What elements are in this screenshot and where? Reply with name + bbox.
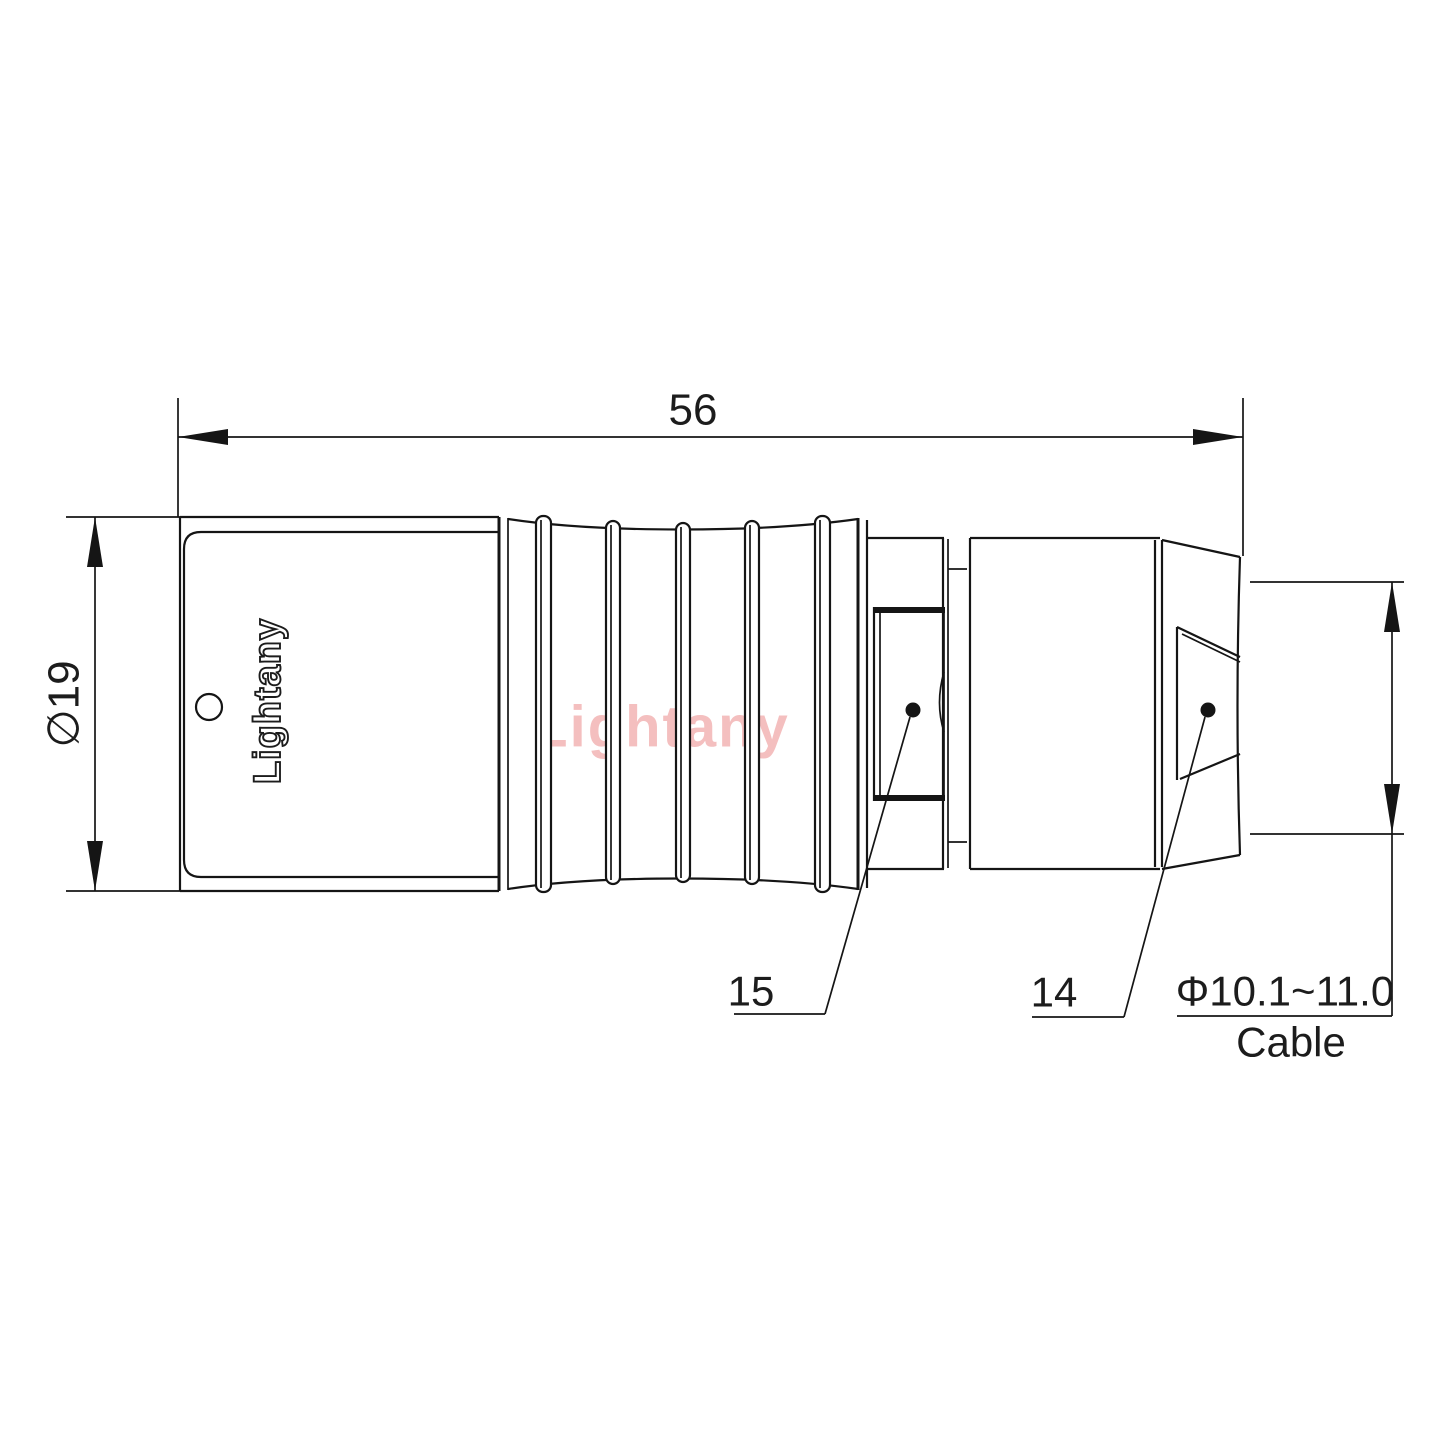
collet-section	[867, 538, 948, 869]
backnut	[970, 538, 1240, 869]
arrowhead-top	[87, 517, 103, 567]
dimension-body-diameter: ∅19	[40, 517, 181, 891]
part-label-14: 14	[1031, 969, 1078, 1016]
leader-dot-15	[906, 703, 921, 718]
arrowhead-bottom	[87, 841, 103, 891]
boot-rib-3	[676, 523, 690, 882]
overall-length-value: 56	[669, 386, 718, 435]
section-tie-lines	[948, 569, 967, 842]
part-label-15: 15	[728, 968, 775, 1015]
leader-dot-14	[1201, 703, 1216, 718]
dimension-cable-diameter: Φ10.1~11.0 Cable	[1176, 582, 1404, 1066]
front-release-sleeve: Lightany	[180, 517, 508, 891]
sleeve-inner-outline	[184, 532, 499, 877]
boot-rib-4	[745, 521, 759, 884]
dimension-overall-length: 56	[178, 386, 1243, 557]
arrowhead-right	[1193, 429, 1243, 445]
backnut-chamfer-bottom	[1162, 855, 1240, 869]
boot-rib-2	[606, 521, 620, 884]
cable-caption: Cable	[1236, 1019, 1346, 1066]
backnut-end-face	[1238, 557, 1241, 855]
cable-window-top-inner	[1182, 634, 1240, 662]
body-diameter-value: ∅19	[40, 660, 89, 747]
connector-drawing-svg: Lightany Lightany	[0, 0, 1440, 1440]
body-logo-text: Lightany	[247, 618, 289, 784]
cable-diameter-value: Φ10.1~11.0	[1176, 968, 1394, 1015]
arrowhead-bottom	[1384, 784, 1400, 834]
sleeve-pin-hole	[196, 694, 222, 720]
arrowhead-left	[178, 429, 228, 445]
technical-drawing-canvas: Lightany Lightany	[0, 0, 1440, 1440]
boot-rib-5	[815, 516, 830, 892]
cable-window-top-outer	[1177, 627, 1240, 657]
backnut-chamfer-top	[1162, 540, 1240, 557]
boot-rib-1	[536, 516, 551, 892]
arrowhead-top	[1384, 582, 1400, 632]
